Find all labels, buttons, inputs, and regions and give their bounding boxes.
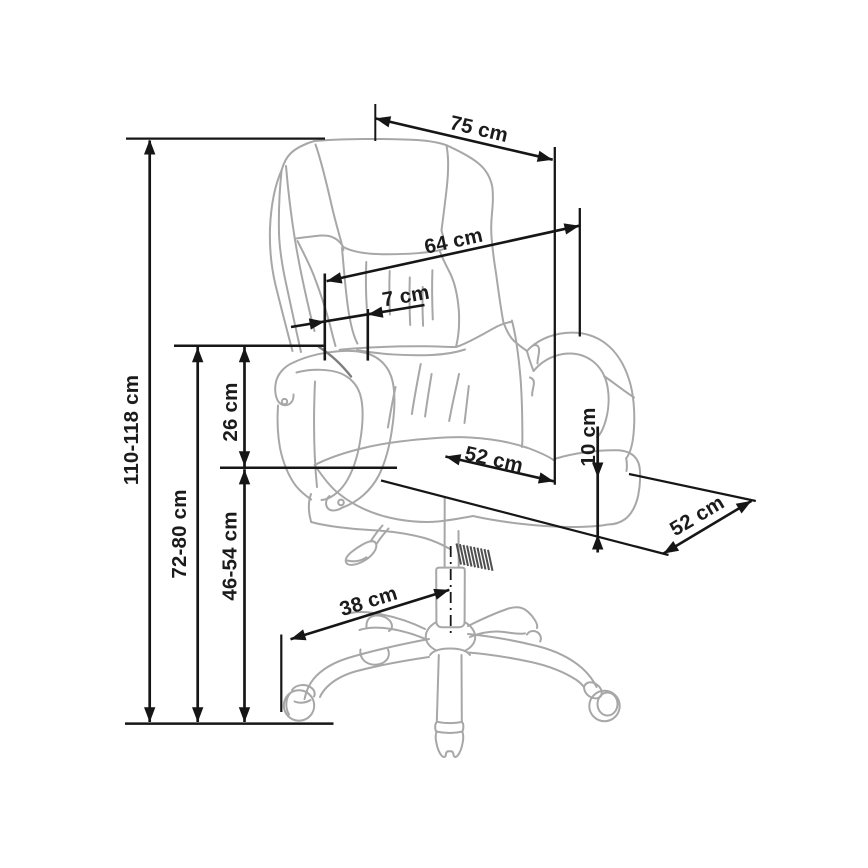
svg-text:110-118 cm: 110-118 cm — [120, 375, 143, 485]
svg-text:72-80 cm: 72-80 cm — [168, 489, 191, 578]
svg-text:10 cm: 10 cm — [577, 407, 600, 466]
svg-text:46-54 cm: 46-54 cm — [219, 511, 242, 600]
svg-text:26 cm: 26 cm — [219, 382, 242, 441]
